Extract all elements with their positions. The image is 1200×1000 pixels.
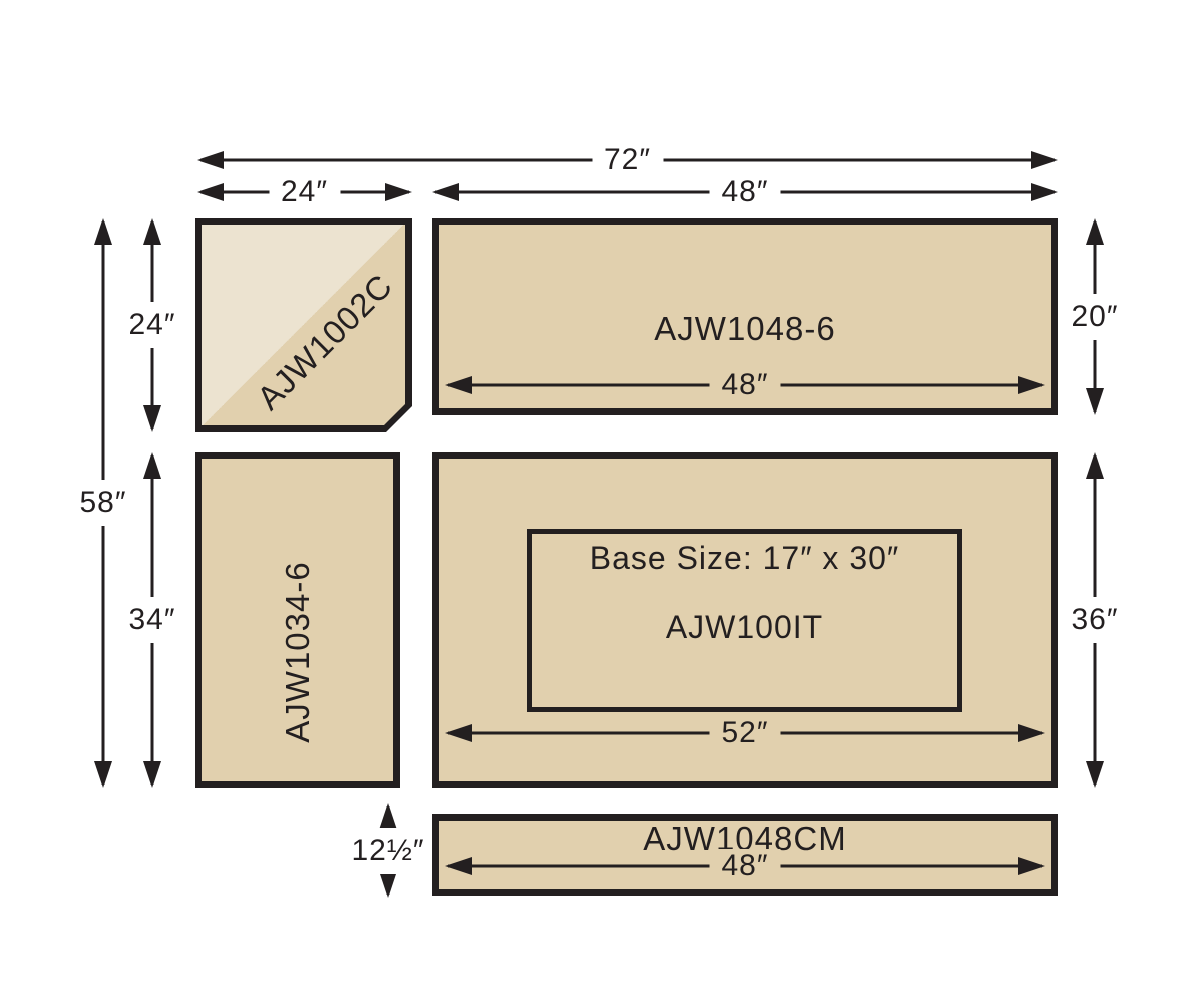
dim-corner-width-label: 24″: [269, 175, 340, 209]
arrowhead-right-icon: [385, 183, 412, 201]
arrowhead-right-icon: [1018, 857, 1045, 875]
arrowhead-right-icon: [1018, 724, 1045, 742]
dim-overall-height: 58″: [90, 218, 116, 788]
arrowhead-down-icon: [379, 871, 397, 898]
arrowhead-down-icon: [1086, 761, 1104, 788]
piece-corner: AJW1002C: [195, 218, 412, 432]
dim-board-depth: 12½″: [375, 803, 401, 898]
dim-corner-height: 24″: [139, 218, 165, 432]
dim-left-height-label: 34″: [124, 597, 181, 643]
corner-surface: [202, 225, 405, 425]
dim-top-width: 48″: [432, 179, 1058, 205]
piece-top-counter-label: AJW1048-6: [439, 312, 1051, 345]
dim-top-depth: 20″: [1082, 218, 1108, 415]
arrowhead-down-icon: [1086, 388, 1104, 415]
dim-left-height: 34″: [139, 452, 165, 788]
dim-corner-width: 24″: [197, 179, 412, 205]
arrowhead-right-icon: [1031, 151, 1058, 169]
dim-top-counter-inner-width-label: 48″: [710, 368, 781, 402]
island-base-outline: Base Size: 17″ x 30″ AJW100IT: [527, 529, 962, 712]
piece-left-counter: AJW1034-6: [195, 452, 400, 788]
dim-board-depth-label: 12½″: [346, 828, 429, 874]
arrowhead-right-icon: [1018, 376, 1045, 394]
arrowhead-down-icon: [143, 405, 161, 432]
dim-top-counter-inner-width: 48″: [445, 372, 1045, 398]
island-base-size-label: Base Size: 17″ x 30″: [532, 540, 957, 577]
dim-island-depth-label: 36″: [1067, 597, 1124, 643]
countertop-layout-diagram: 72″ 24″ 48″ 58″ 24″ 34″ 20″: [0, 0, 1200, 1000]
dim-top-depth-label: 20″: [1067, 294, 1124, 340]
dim-island-inner-width-label: 52″: [710, 716, 781, 750]
arrowhead-right-icon: [1031, 183, 1058, 201]
dim-cutting-board-inner-width: 48″: [445, 853, 1045, 879]
arrowhead-down-icon: [94, 761, 112, 788]
dim-island-depth: 36″: [1082, 452, 1108, 788]
piece-island-label: AJW100IT: [532, 609, 957, 646]
dim-corner-height-label: 24″: [124, 302, 181, 348]
dim-overall-height-label: 58″: [75, 480, 132, 526]
piece-left-counter-label: AJW1034-6: [279, 561, 317, 742]
dim-overall-width-label: 72″: [592, 143, 663, 177]
dim-cutting-board-inner-width-label: 48″: [710, 849, 781, 883]
dim-top-width-label: 48″: [710, 175, 781, 209]
arrowhead-down-icon: [143, 761, 161, 788]
dim-island-inner-width: 52″: [445, 720, 1045, 746]
dim-overall-width: 72″: [197, 147, 1058, 173]
